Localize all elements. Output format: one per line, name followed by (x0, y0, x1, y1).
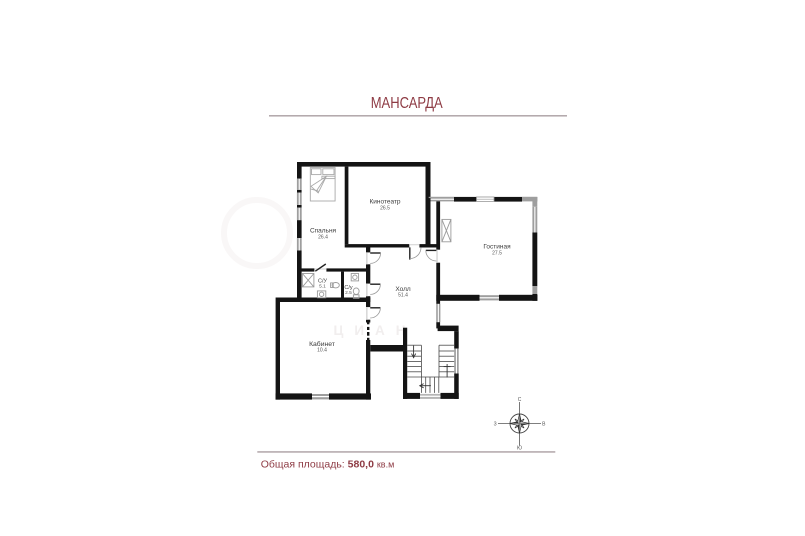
svg-text:26.5: 26.5 (380, 205, 390, 211)
svg-text:МАНСАРДА: МАНСАРДА (371, 95, 443, 112)
svg-text:Общая площадь: 580,0 кв.м: Общая площадь: 580,0 кв.м (261, 459, 395, 471)
svg-text:51.4: 51.4 (398, 293, 408, 299)
svg-text:С: С (518, 397, 522, 403)
svg-text:5.1: 5.1 (319, 284, 326, 290)
svg-text:26.4: 26.4 (318, 235, 328, 241)
svg-text:С/у: С/у (344, 285, 353, 291)
svg-text:С/У: С/У (318, 279, 328, 285)
svg-text:2.5: 2.5 (345, 290, 352, 296)
svg-text:10.4: 10.4 (317, 348, 327, 354)
svg-text:З: З (494, 422, 497, 428)
svg-text:27.5: 27.5 (492, 250, 502, 256)
svg-text:Спальня: Спальня (310, 228, 337, 235)
svg-text:Ю: Ю (517, 446, 522, 452)
